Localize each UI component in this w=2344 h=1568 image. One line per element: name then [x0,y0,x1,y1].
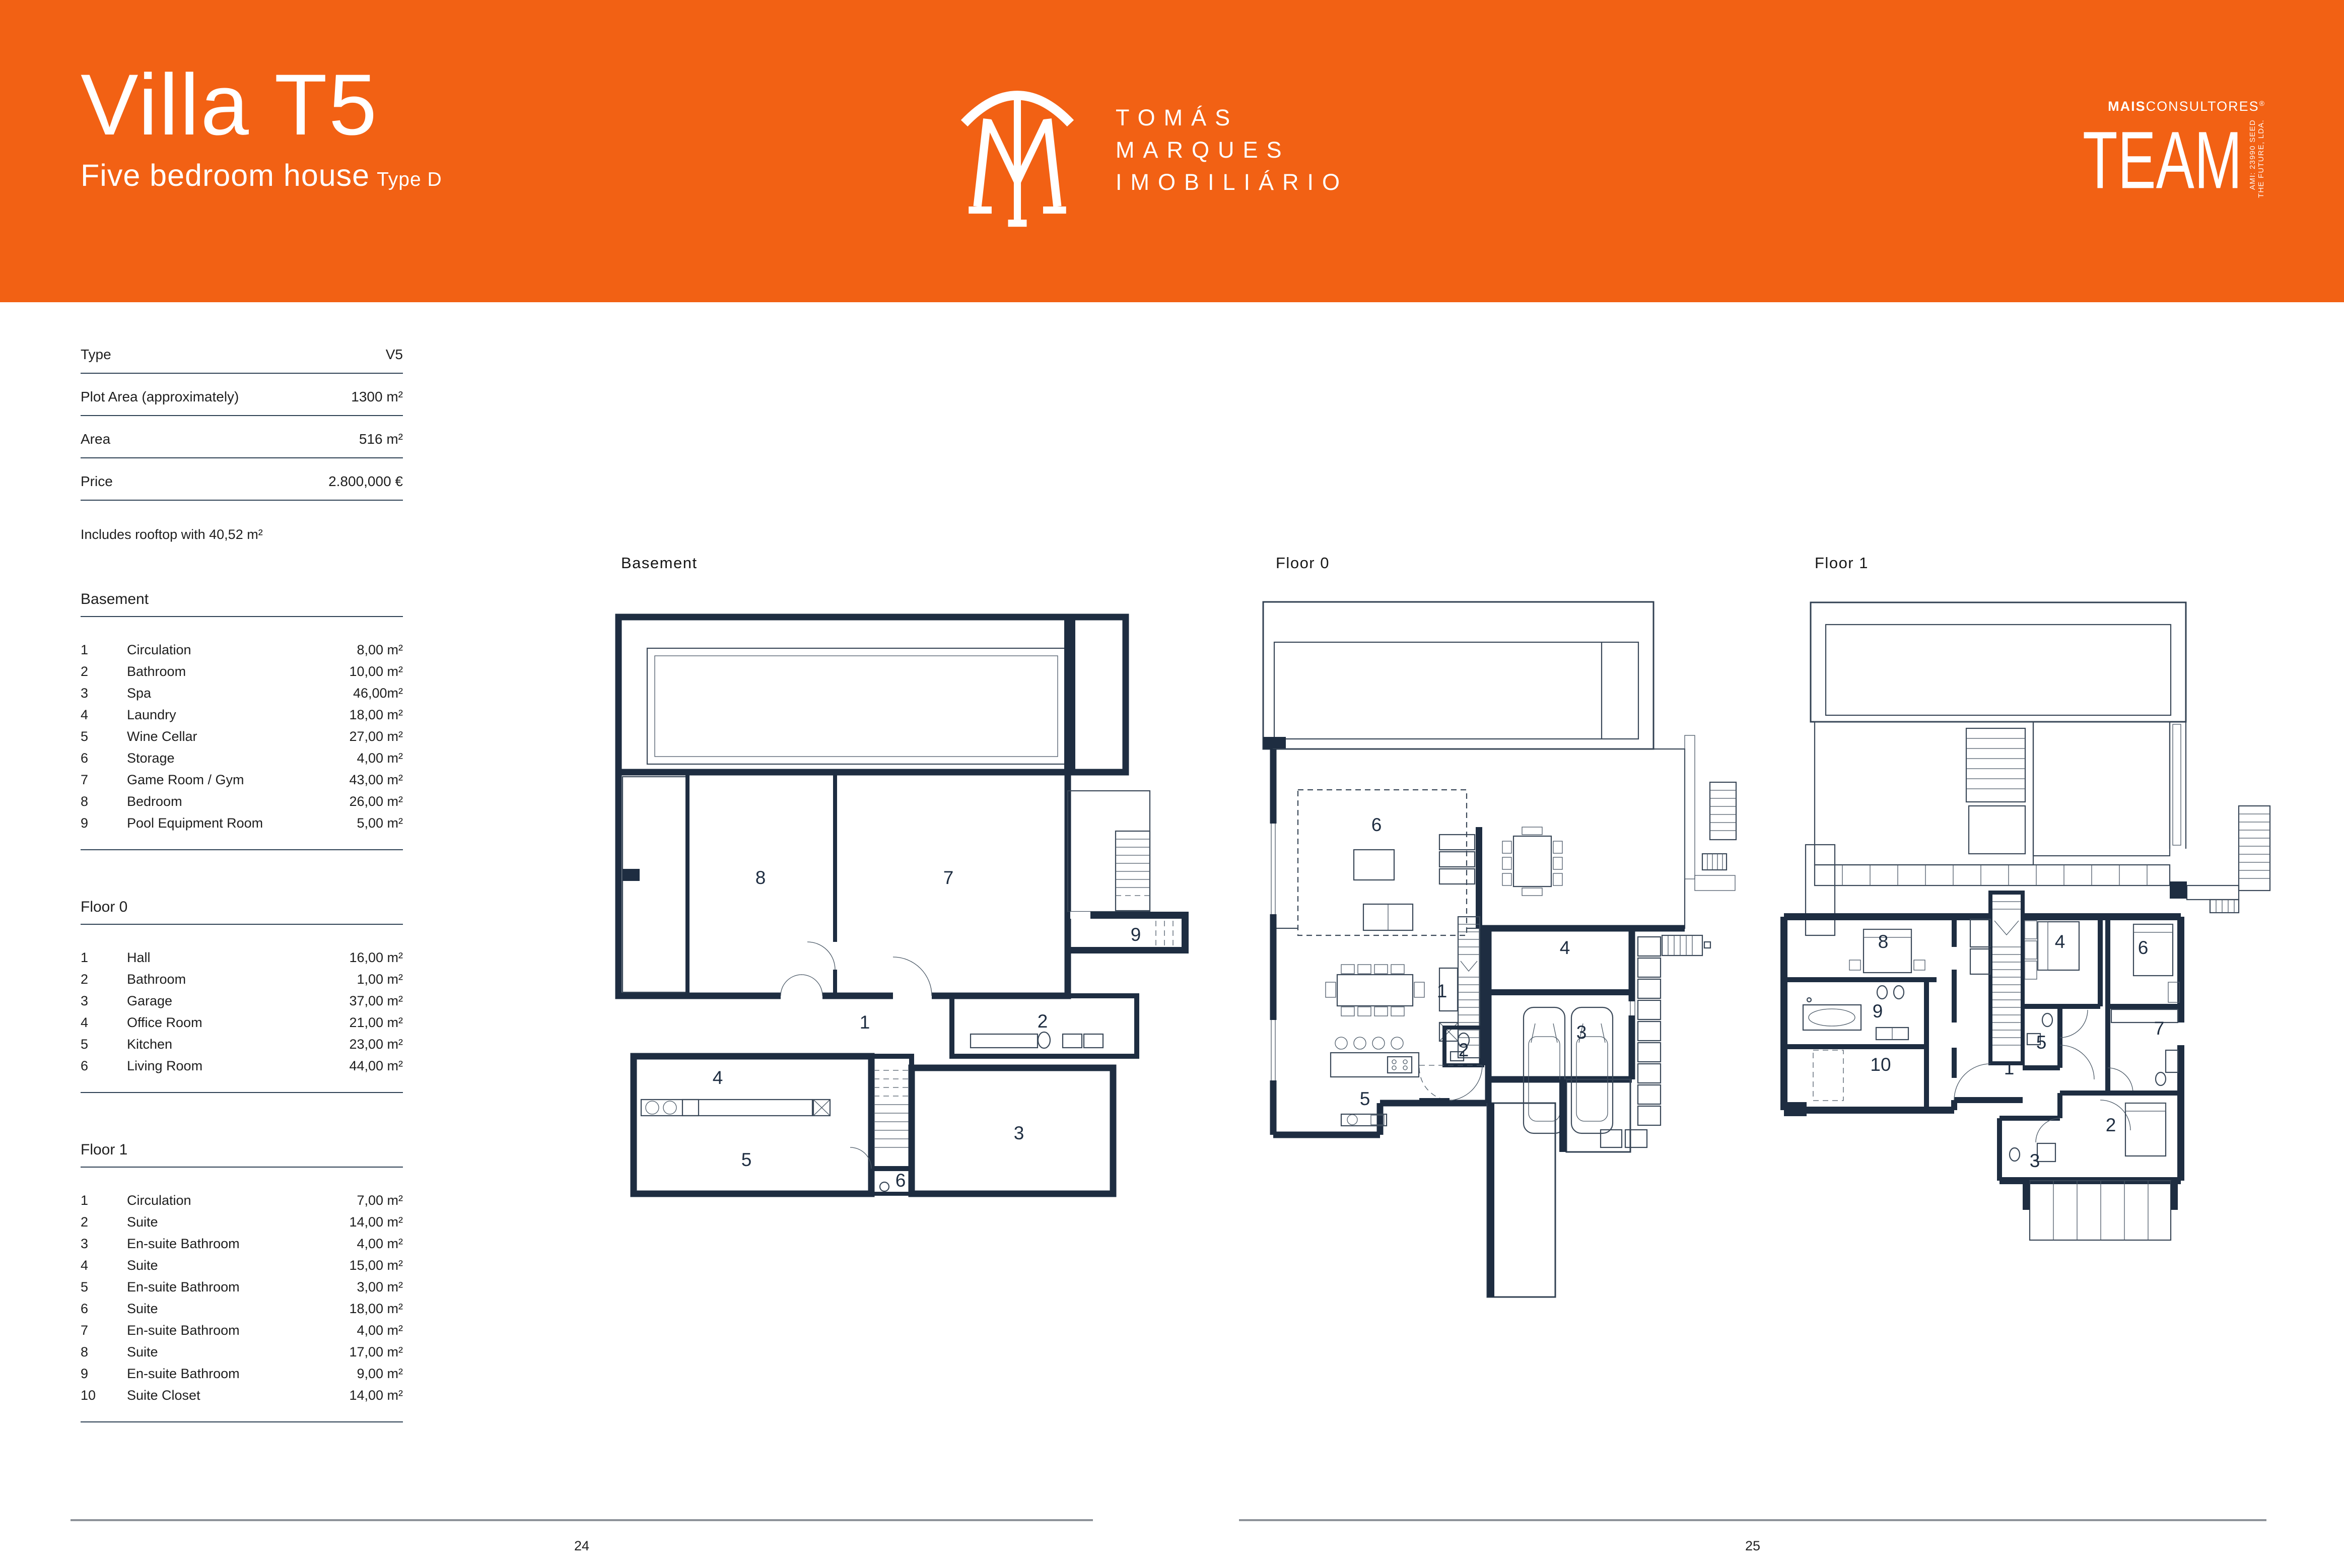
plan-room-number: 2 [1038,1011,1048,1032]
section-title: Floor 0 [81,899,403,916]
room-area: 43,00 m² [349,769,403,791]
details-row: Plot Area (approximately) 1300 m² [81,374,403,416]
caption-floor0: Floor 0 [1276,554,1330,572]
room-area: 5,00 m² [357,812,403,834]
section-basement: Basement 1 Circulation 8,00 m² 2 Bathroo… [81,591,403,850]
room-name: Laundry [127,704,349,726]
type-tag: Type D [377,169,442,190]
room-area: 3,00 m² [357,1276,403,1298]
room-number: 6 [81,1055,127,1077]
registered-mark: ® [2259,99,2265,107]
section-floor0: Floor 0 1 Hall 16,00 m² 2 Bathroom 1,00 … [81,899,403,1093]
header-banner: Villa T5 Five bedroom houseType D TOMÁS … [0,0,2344,302]
room-number: 2 [81,661,127,683]
room-row: 9 Pool Equipment Room 5,00 m² [81,812,403,834]
tm-monogram-icon [954,59,1080,241]
room-row: 1 Circulation 8,00 m² [81,639,403,661]
room-row: 4 Office Room 21,00 m² [81,1012,403,1034]
room-name: Kitchen [127,1034,349,1055]
room-name: Office Room [127,1012,349,1034]
room-name: Garage [127,990,349,1012]
subtitle-text: Five bedroom house [81,158,370,192]
floor0-floor-plan: 641523 [1259,594,1843,1325]
room-number: 3 [81,683,127,704]
rooftop-note: Includes rooftop with 40,52 m² [81,527,403,542]
room-list-floor0: 1 Hall 16,00 m² 2 Bathroom 1,00 m² 3 Gar… [81,947,403,1077]
room-list-basement: 1 Circulation 8,00 m² 2 Bathroom 10,00 m… [81,639,403,834]
brochure-page: Villa T5 Five bedroom houseType D TOMÁS … [0,0,2344,1568]
page-number-right: 25 [1239,1538,2266,1554]
room-number: 1 [81,1190,127,1211]
page-number-left: 24 [71,1538,1093,1554]
details-row: Type V5 [81,331,403,374]
room-name: Bedroom [127,791,349,812]
plan-room-number: 7 [2154,1018,2165,1039]
room-row: 6 Suite 18,00 m² [81,1298,403,1320]
plan-room-number: 5 [2036,1032,2047,1053]
room-area: 18,00 m² [349,1298,403,1320]
details-row: Price 2.800,000 € [81,458,403,501]
room-number: 5 [81,1034,127,1055]
room-number: 9 [81,812,127,834]
room-name: En-suite Bathroom [127,1276,357,1298]
room-number: 9 [81,1363,127,1385]
room-name: En-suite Bathroom [127,1363,357,1385]
room-area: 14,00 m² [349,1211,403,1233]
room-name: Circulation [127,1190,357,1211]
brand-mais-consultores: MAISCONSULTORES® TEAM AMI: 23990 SEED TH… [2077,99,2265,204]
plan-room-number: 3 [1576,1022,1587,1043]
plan-room-number: 8 [1878,931,1889,952]
room-number: 1 [81,947,127,969]
room-number: 8 [81,791,127,812]
room-row: 5 Kitchen 23,00 m² [81,1034,403,1055]
ami-side-text: AMI: 23990 SEED THE FUTURE, LDA. [2248,119,2265,200]
room-name: Hall [127,947,349,969]
plan-room-number: 4 [2055,931,2065,952]
room-area: 4,00 m² [357,747,403,769]
room-area: 26,00 m² [349,791,403,812]
room-name: Wine Cellar [127,726,349,747]
room-number: 8 [81,1341,127,1363]
room-area: 21,00 m² [349,1012,403,1034]
plan-room-number: 1 [860,1012,870,1033]
plan-room-number: 4 [713,1067,723,1088]
room-row: 4 Suite 15,00 m² [81,1255,403,1276]
section-title: Basement [81,591,403,608]
title-block: Villa T5 Five bedroom houseType D [81,59,442,193]
room-row: 2 Bathroom 10,00 m² [81,661,403,683]
room-number: 10 [81,1385,127,1406]
room-row: 1 Hall 16,00 m² [81,947,403,969]
brand-line-2: MARQUES [1116,134,1348,166]
plan-room-number: 3 [1014,1123,1024,1143]
room-name: Game Room / Gym [127,769,349,791]
basement-floor-plan: 879124563 [604,594,1189,1199]
brand-wordmark-lines: TOMÁS MARQUES IMOBILIÁRIO [1116,102,1348,198]
caption-floor1: Floor 1 [1815,554,1869,572]
plan-room-number: 6 [2138,937,2149,958]
plan-room-number: 9 [1873,1001,1883,1021]
room-number: 6 [81,1298,127,1320]
details-table: Type V5 Plot Area (approximately) 1300 m… [81,331,403,501]
caption-basement: Basement [621,554,698,572]
room-area: 4,00 m² [357,1233,403,1255]
room-number: 4 [81,1012,127,1034]
mais-consultores-label: MAISCONSULTORES® [2077,99,2265,114]
plan-room-number: 1 [1437,981,1447,1001]
room-number: 5 [81,1276,127,1298]
room-row: 8 Bedroom 26,00 m² [81,791,403,812]
room-name: Spa [127,683,353,704]
room-area: 14,00 m² [349,1385,403,1406]
detail-label: Area [81,431,110,447]
room-row: 8 Suite 17,00 m² [81,1341,403,1363]
room-number: 4 [81,704,127,726]
room-number: 3 [81,1233,127,1255]
room-area: 46,00m² [353,683,403,704]
room-number: 2 [81,1211,127,1233]
detail-label: Price [81,473,113,490]
room-area: 17,00 m² [349,1341,403,1363]
room-number: 6 [81,747,127,769]
plan-room-number: 8 [755,867,766,888]
plan-room-number: 2 [2106,1115,2116,1135]
room-area: 16,00 m² [349,947,403,969]
room-row: 9 En-suite Bathroom 9,00 m² [81,1363,403,1385]
room-row: 3 En-suite Bathroom 4,00 m² [81,1233,403,1255]
detail-value: 516 m² [359,431,403,447]
room-area: 1,00 m² [357,969,403,990]
room-name: Suite [127,1298,349,1320]
footer-rule-right [1239,1519,2266,1521]
plan-room-number: 7 [943,867,954,888]
room-name: Circulation [127,639,357,661]
room-name: Living Room [127,1055,349,1077]
plan-room-number: 4 [1560,937,1570,958]
property-sidebar: Type V5 Plot Area (approximately) 1300 m… [81,331,403,1422]
plan-room-number: 9 [1131,924,1141,945]
section-title: Floor 1 [81,1141,403,1158]
floor1-floor-plan: 84695710123 [1778,594,2344,1264]
room-area: 10,00 m² [349,661,403,683]
room-row: 5 Wine Cellar 27,00 m² [81,726,403,747]
room-area: 4,00 m² [357,1320,403,1341]
room-row: 7 Game Room / Gym 43,00 m² [81,769,403,791]
brand-line-1: TOMÁS [1116,102,1348,134]
room-number: 2 [81,969,127,990]
room-area: 18,00 m² [349,704,403,726]
room-list-floor1: 1 Circulation 7,00 m² 2 Suite 14,00 m² 3… [81,1190,403,1406]
room-number: 1 [81,639,127,661]
room-row: 1 Circulation 7,00 m² [81,1190,403,1211]
room-row: 4 Laundry 18,00 m² [81,704,403,726]
room-row: 6 Storage 4,00 m² [81,747,403,769]
room-name: Suite [127,1255,349,1276]
plan-room-number: 6 [1371,814,1382,835]
room-number: 4 [81,1255,127,1276]
mais-bold: MAIS [2108,99,2146,114]
detail-label: Plot Area (approximately) [81,389,239,405]
room-name: Bathroom [127,661,349,683]
plan-room-number: 1 [2004,1058,2015,1078]
page-subtitle: Five bedroom houseType D [81,158,442,193]
room-name: Storage [127,747,357,769]
room-row: 2 Bathroom 1,00 m² [81,969,403,990]
room-name: Suite Closet [127,1385,349,1406]
room-name: En-suite Bathroom [127,1320,357,1341]
room-name: Bathroom [127,969,357,990]
plan-room-number: 2 [1459,1040,1469,1060]
room-area: 15,00 m² [349,1255,403,1276]
room-name: Pool Equipment Room [127,812,357,834]
room-name: Suite [127,1341,349,1363]
room-row: 7 En-suite Bathroom 4,00 m² [81,1320,403,1341]
room-area: 9,00 m² [357,1363,403,1385]
detail-label: Type [81,347,111,363]
room-number: 7 [81,769,127,791]
plan-room-number: 5 [741,1149,752,1170]
room-number: 7 [81,1320,127,1341]
room-area: 7,00 m² [357,1190,403,1211]
mais-rest: CONSULTORES [2146,99,2259,114]
room-area: 37,00 m² [349,990,403,1012]
detail-value: 2.800,000 € [328,473,403,490]
team-logo: TEAM [2077,119,2245,204]
room-number: 3 [81,990,127,1012]
room-area: 23,00 m² [349,1034,403,1055]
room-name: Suite [127,1211,349,1233]
room-name: En-suite Bathroom [127,1233,357,1255]
detail-value: 1300 m² [351,389,403,405]
plan-room-number: 6 [895,1170,906,1191]
details-row: Area 516 m² [81,416,403,458]
room-area: 8,00 m² [357,639,403,661]
page-title: Villa T5 [81,59,442,151]
room-row: 10 Suite Closet 14,00 m² [81,1385,403,1406]
room-row: 2 Suite 14,00 m² [81,1211,403,1233]
plan-room-number: 10 [1870,1054,1891,1075]
room-area: 44,00 m² [349,1055,403,1077]
detail-value: V5 [386,347,403,363]
footer-rule-left [71,1519,1093,1521]
room-row: 5 En-suite Bathroom 3,00 m² [81,1276,403,1298]
room-number: 5 [81,726,127,747]
room-row: 3 Garage 37,00 m² [81,990,403,1012]
plan-room-number: 3 [2030,1150,2040,1171]
plan-room-number: 5 [1360,1088,1370,1109]
room-row: 6 Living Room 44,00 m² [81,1055,403,1077]
brand-tomas-marques: TOMÁS MARQUES IMOBILIÁRIO [954,59,1348,241]
room-area: 27,00 m² [349,726,403,747]
room-row: 3 Spa 46,00m² [81,683,403,704]
svg-text:TEAM: TEAM [2083,119,2242,204]
section-floor1: Floor 1 1 Circulation 7,00 m² 2 Suite 14… [81,1141,403,1422]
brand-line-3: IMOBILIÁRIO [1116,166,1348,198]
